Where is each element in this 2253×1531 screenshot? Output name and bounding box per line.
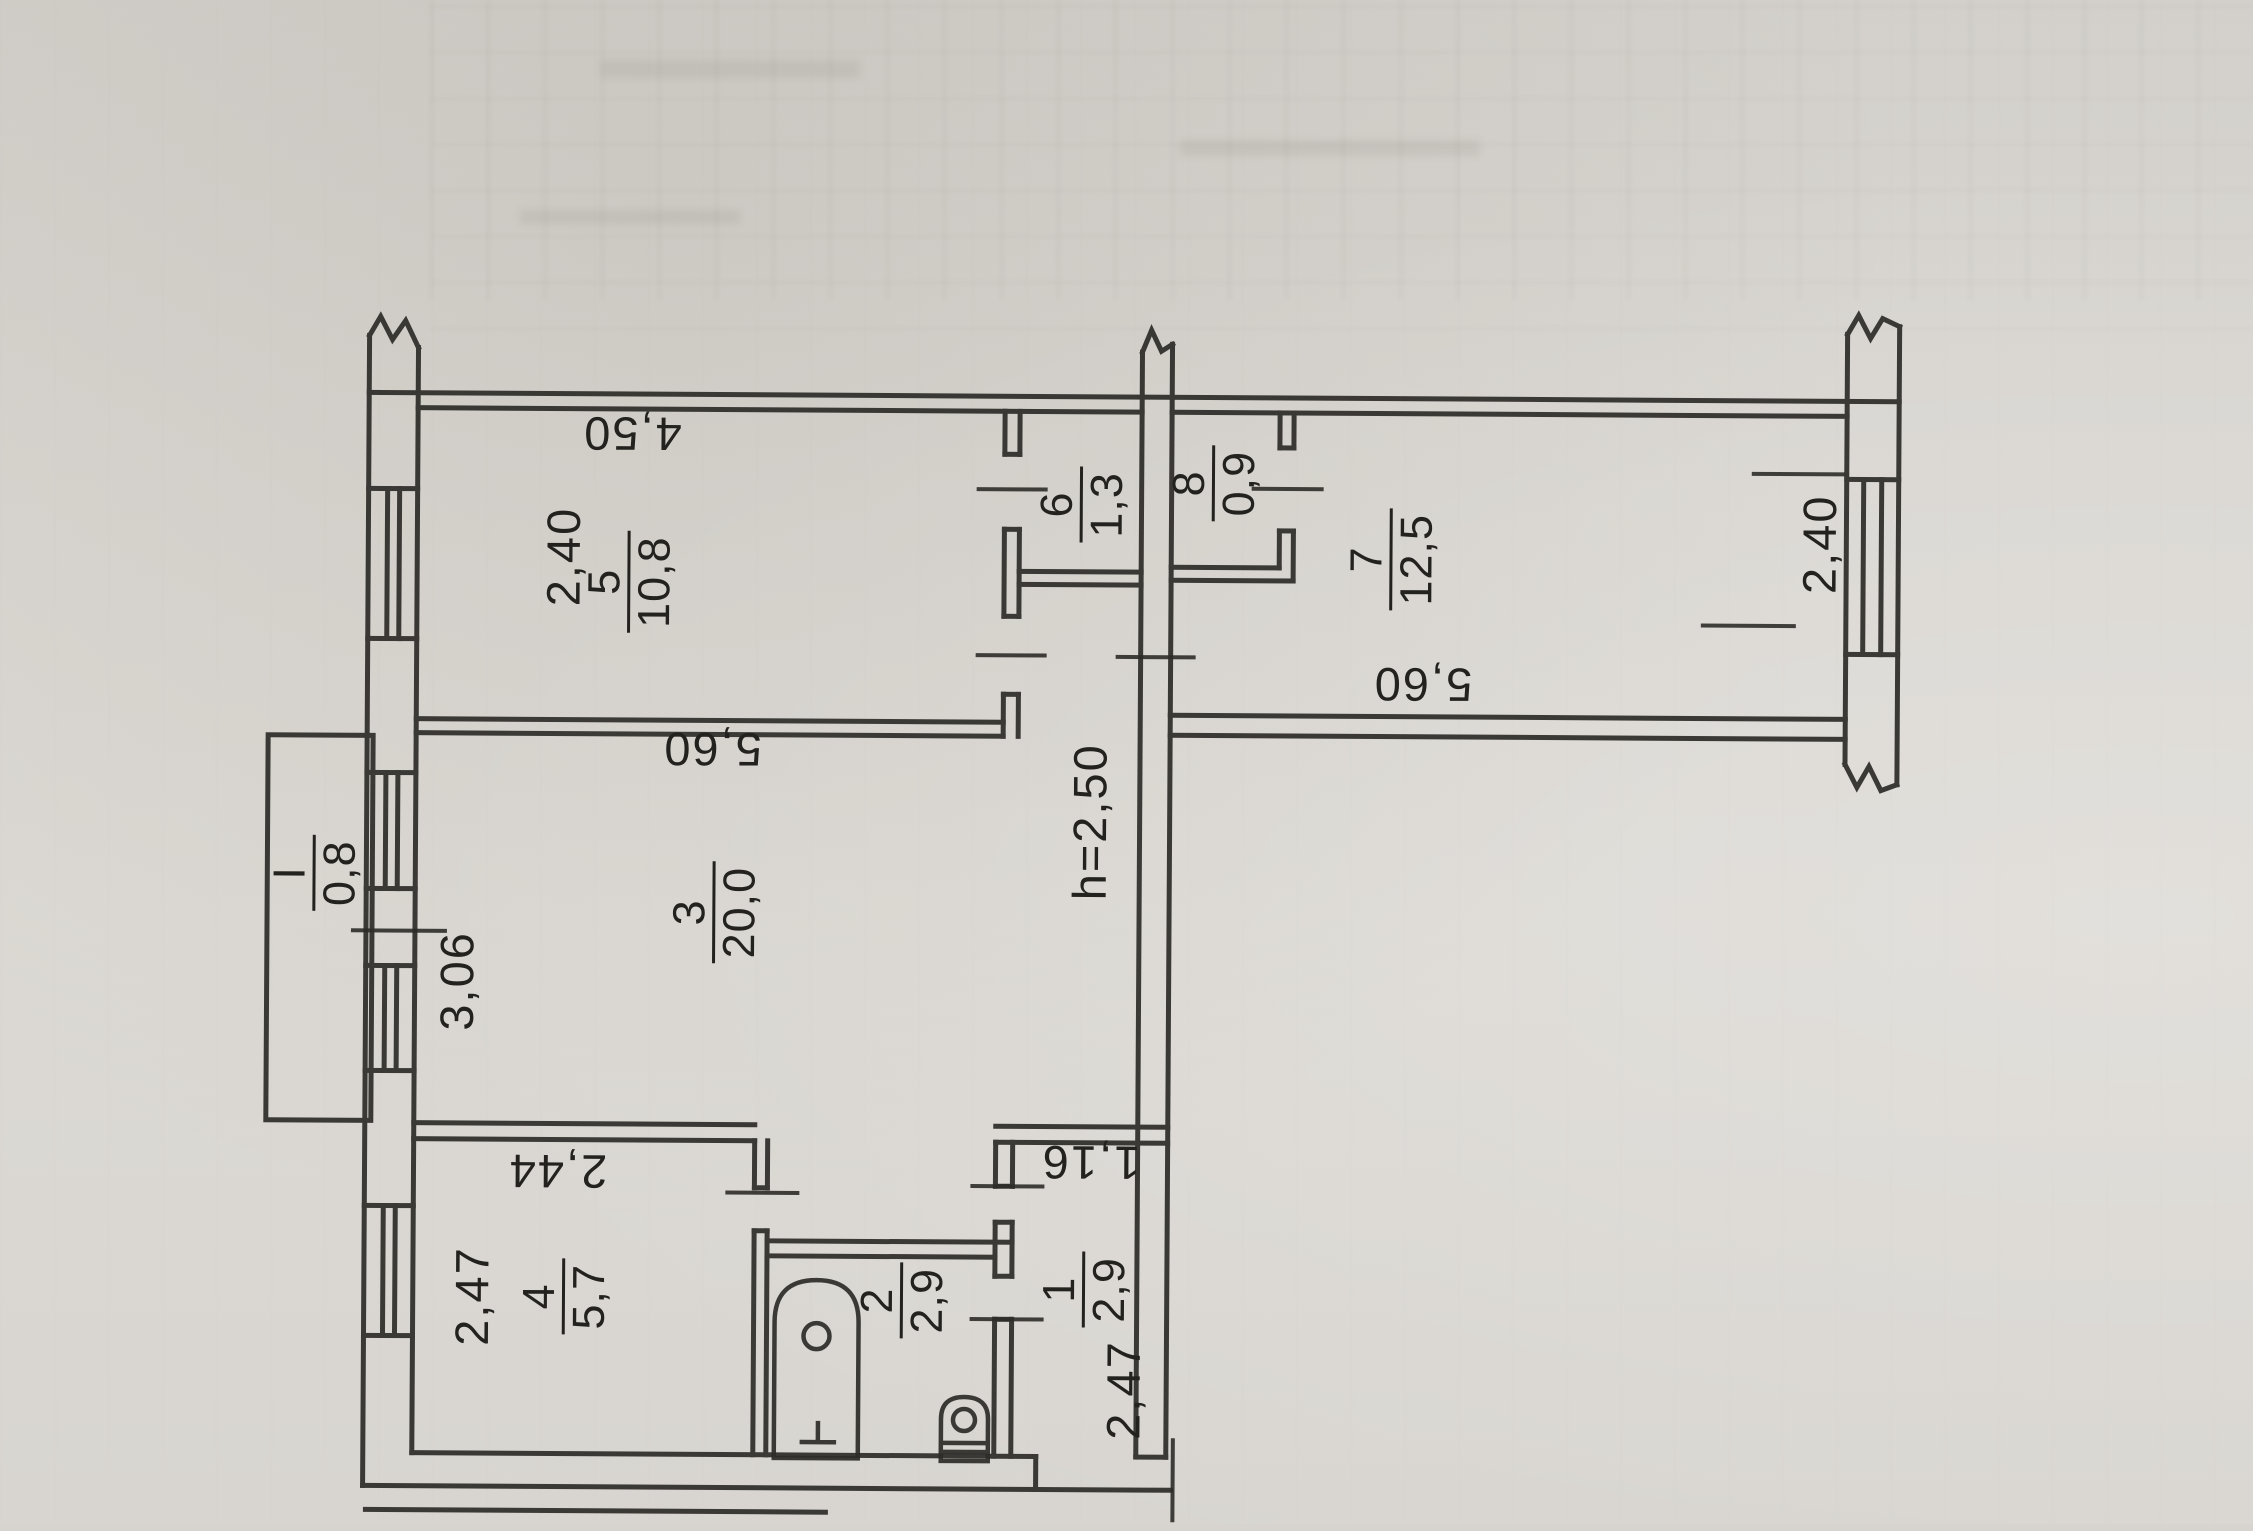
tick-bottom-right [1172, 1438, 1173, 1522]
dim-room4-width: 2,44 [508, 1144, 608, 1200]
dim-room3-depth: 3,06 [429, 931, 485, 1031]
wall-room6-bottom [1019, 571, 1141, 585]
room-6-number: 6 [1033, 489, 1080, 519]
wall-wing-bottom-inner [1170, 735, 1845, 739]
tick-room7-window-top [1752, 474, 1845, 475]
room-1-area: 2,9 [1082, 1252, 1133, 1328]
toilet-tank-hatch [944, 1443, 985, 1452]
balcony-area: 0,8 [313, 835, 364, 911]
wall-break-top-center [1143, 330, 1173, 352]
dim-room5-width: 4,50 [582, 406, 682, 462]
wall-left-outer [363, 335, 370, 1485]
wall-right-outer [1897, 327, 1900, 785]
room-5-area: 10,8 [627, 531, 678, 633]
room-8-number: 8 [1165, 468, 1212, 498]
room-2-label: 2 2,9 [853, 1263, 951, 1339]
room-2-number: 2 [853, 1285, 900, 1315]
wall-break-top-right [1848, 315, 1900, 338]
wall-break-bottom-right [1845, 764, 1897, 790]
room-6-label: 6 1,3 [1033, 467, 1131, 543]
window-room3-balcony-door [385, 772, 398, 888]
tick-room7-window-bottom [1701, 626, 1796, 627]
wall-room8-bottom [1171, 567, 1293, 581]
wall-room2-room1 [994, 1142, 1013, 1456]
room-6-area: 1,3 [1080, 467, 1131, 543]
room-4-area: 5,7 [562, 1259, 613, 1335]
room-5-label: 5 10,8 [580, 531, 678, 633]
window-room3-left [384, 965, 397, 1070]
window-room4-left [382, 1205, 395, 1335]
dim-ceiling-height: h=2,50 [1062, 743, 1118, 900]
wall-fragment-bottom-edge [365, 1509, 825, 1512]
bathtub-drain [803, 1323, 829, 1349]
window-room7-right [1863, 479, 1882, 654]
window-jambs-right [1846, 479, 1899, 654]
balcony-label: I 0,8 [265, 835, 363, 911]
dim-room5-depth: 2,40 [535, 507, 591, 607]
window-room5-left [387, 488, 400, 638]
wall-room5-right-a [1003, 411, 1005, 736]
room-1-number: 1 [1035, 1274, 1082, 1304]
balcony-outline [266, 735, 373, 1121]
dim-room1-width: 1,16 [1041, 1135, 1141, 1191]
dim-room7-width: 5,60 [1373, 657, 1473, 713]
room-3-area: 20,0 [712, 862, 763, 964]
dim-room4-depth: 2,47 [444, 1246, 500, 1346]
wall-room2-top [767, 1241, 1012, 1257]
room-1-label: 1 2,9 [1035, 1252, 1133, 1328]
dim-room3-width: 5,60 [662, 722, 762, 778]
wall-top-outer [369, 392, 1899, 401]
wall-center-left-face [1136, 352, 1143, 1457]
wall-room4-top [414, 1123, 755, 1141]
room-3-number: 3 [665, 897, 712, 927]
room-4-label: 4 5,7 [515, 1258, 613, 1334]
wall-room8-right [1279, 413, 1294, 581]
dim-room1-depth: 2,47 [1095, 1340, 1151, 1440]
wall-wing-bottom-outer [1170, 715, 1845, 719]
room-2-area: 2,9 [900, 1263, 951, 1339]
room-8-area: 0,9 [1212, 446, 1263, 522]
room-7-area: 12,5 [1389, 509, 1440, 611]
room-7-number: 7 [1342, 544, 1389, 574]
room-3-label: 3 20,0 [665, 861, 763, 963]
wall-bottom-outer [363, 1485, 1171, 1490]
dim-room7-depth: 2,40 [1792, 494, 1848, 594]
wall-break-top-left [370, 316, 419, 347]
room-7-label: 7 12,5 [1342, 509, 1440, 611]
toilet-bowl [953, 1409, 975, 1431]
floor-plan: 5 10,8 6 1,3 8 0,9 7 12,5 3 20,0 4 5,7 2… [0, 0, 2253, 1531]
bathtub-faucet [802, 1423, 834, 1442]
room-4-number: 4 [515, 1281, 562, 1311]
room-8-label: 8 0,9 [1165, 445, 1263, 521]
balcony-number: I [266, 864, 313, 882]
wall-left-inner [412, 348, 419, 1453]
